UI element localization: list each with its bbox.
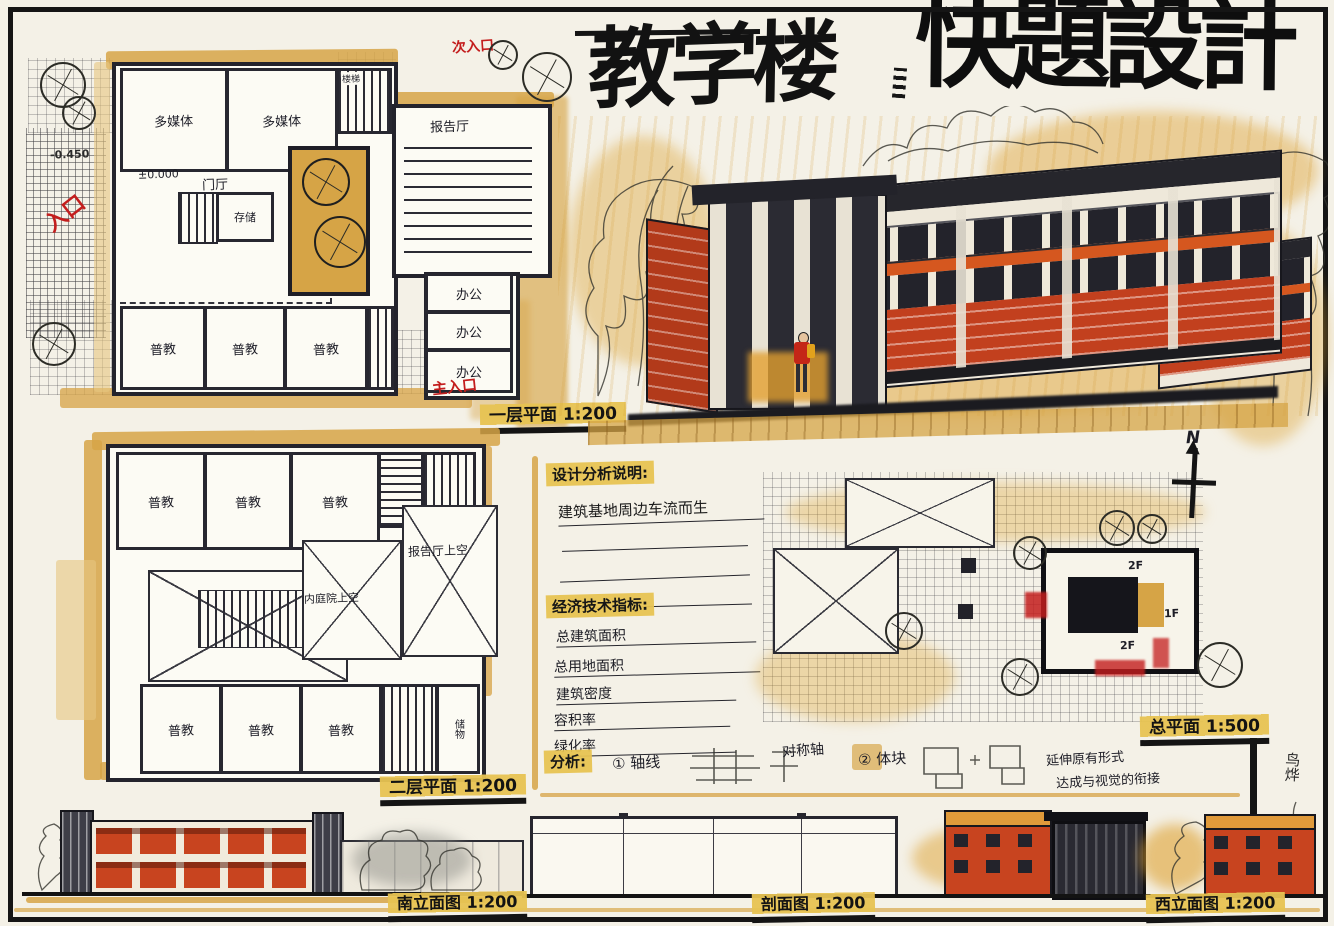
signature: 鸟烨 bbox=[1281, 752, 1303, 783]
plan1-stair-bottom bbox=[366, 306, 394, 390]
door-lintel bbox=[1044, 812, 1148, 821]
room-label: 普教 bbox=[232, 338, 259, 358]
plan1-hall-stair bbox=[178, 192, 218, 244]
plan1-room-office: 办公 bbox=[425, 273, 513, 313]
plan2-room-putong: 普教 bbox=[116, 452, 206, 550]
page-title-left: 教学楼 bbox=[587, 18, 834, 115]
section-tick bbox=[797, 813, 806, 819]
mass-sketch bbox=[918, 738, 1038, 794]
entrance-glow bbox=[748, 352, 828, 402]
plan1-room-multimedia: 多媒体 bbox=[120, 68, 228, 172]
room-label: 多媒体 bbox=[154, 110, 194, 130]
plan1-room-store: 存储 bbox=[216, 192, 274, 242]
plan2-void-lecture bbox=[402, 505, 498, 657]
tree-scribble bbox=[22, 822, 62, 892]
notes-header-design: 设计分析说明: bbox=[546, 462, 654, 485]
tree-icon bbox=[1013, 536, 1047, 570]
section-beam-line bbox=[533, 833, 895, 834]
window-row bbox=[954, 834, 1040, 847]
site-small-block bbox=[961, 558, 976, 573]
room-label: 办公 bbox=[456, 322, 482, 341]
tree-icon bbox=[1197, 642, 1243, 688]
room-label: 存储 bbox=[234, 209, 256, 225]
site-entry-red bbox=[1095, 660, 1145, 676]
notes-margin-stroke bbox=[532, 456, 538, 790]
room-label: 储物 bbox=[451, 719, 466, 739]
room-label: 普教 bbox=[168, 719, 195, 739]
tree-icon bbox=[522, 52, 572, 102]
window-row bbox=[954, 860, 1040, 873]
floor-label: 2F bbox=[1120, 639, 1136, 653]
site-court bbox=[773, 548, 899, 654]
tech-item-label: 总用地面积 bbox=[554, 655, 624, 677]
site-plan: 2F 1F 2F bbox=[755, 452, 1245, 738]
tree-icon bbox=[1137, 514, 1167, 544]
window-band bbox=[96, 828, 306, 854]
tree-scribble bbox=[352, 824, 502, 894]
plan1-room-office: 办公 bbox=[425, 311, 513, 351]
room-label: 普教 bbox=[148, 491, 175, 511]
tech-item-label: 建筑密度 bbox=[556, 683, 613, 704]
roof-court bbox=[1138, 583, 1164, 627]
plan1-room-putong: 普教 bbox=[120, 306, 206, 390]
site-court bbox=[845, 478, 995, 548]
band-top bbox=[1206, 816, 1314, 830]
plan1-lecture-wing: 报告厅 bbox=[392, 104, 552, 278]
hall-label: 门厅 bbox=[202, 174, 229, 194]
analysis-axis-note: 对称轴 bbox=[781, 739, 824, 762]
window-band bbox=[96, 862, 306, 888]
person-legs bbox=[796, 364, 800, 392]
site-small-block bbox=[958, 604, 973, 619]
void-stair bbox=[198, 590, 312, 648]
room-label: 办公 bbox=[456, 284, 482, 303]
person-figure bbox=[790, 332, 816, 410]
north-arrowhead bbox=[1186, 440, 1201, 455]
section-column bbox=[623, 819, 624, 895]
classroom-block bbox=[90, 820, 316, 896]
west-elevation-caption: 西立面图 1:200 bbox=[1146, 889, 1285, 923]
window-row bbox=[1214, 836, 1304, 849]
tree-scribble bbox=[1142, 812, 1212, 896]
tech-item: 建筑密度 bbox=[556, 680, 736, 706]
tree-icon bbox=[885, 612, 923, 650]
notes-header-tech: 经济技术指标: bbox=[546, 594, 654, 617]
plan2-room-putong-b: 普教 bbox=[220, 684, 302, 774]
bottom-ochre-line bbox=[14, 908, 1320, 912]
tech-item: 总建筑面积 bbox=[556, 621, 756, 647]
room-label: 报告厅 bbox=[430, 115, 470, 135]
ground-band bbox=[94, 62, 110, 392]
analysis-label: 分析: bbox=[544, 750, 592, 773]
roof-dark bbox=[1068, 577, 1138, 633]
plan2-room-putong-b: 普教 bbox=[140, 684, 222, 774]
building-main-facade bbox=[858, 149, 1282, 390]
analysis-mass-note: 达成与视觉的衔接 bbox=[1056, 767, 1161, 791]
room-label: 普教 bbox=[248, 719, 275, 739]
dark-door bbox=[1052, 821, 1146, 900]
room-label: 普教 bbox=[313, 338, 340, 358]
floor-label: 1F bbox=[1164, 607, 1180, 621]
band-top bbox=[946, 812, 1050, 827]
analysis-mass-item: ② 体块 bbox=[858, 747, 907, 770]
section-tick bbox=[619, 813, 628, 819]
analysis-axis-item: ① 轴线 bbox=[612, 751, 661, 774]
notes-header-tech-text: 经济技术指标: bbox=[546, 593, 655, 619]
analysis-label-text: 分析: bbox=[544, 749, 593, 773]
level-mark-zero: ±0.000 bbox=[138, 167, 179, 181]
site-entry-red bbox=[1153, 638, 1169, 668]
presentation-board: 教学楼 快題設計 多媒体 多媒体 楼梯 ±0.000 门厅 存储 普教 普教 普… bbox=[0, 0, 1334, 926]
perspective-rendering bbox=[558, 106, 1330, 434]
plan2-room-putong: 普教 bbox=[204, 452, 292, 550]
south-elevation-caption: 南立面图 1:200 bbox=[388, 888, 527, 922]
tech-item-label: 总建筑面积 bbox=[556, 625, 626, 647]
section-caption: 剖面图 1:200 bbox=[752, 889, 875, 923]
tech-item: 总用地面积 bbox=[554, 651, 760, 677]
plan1-courtyard bbox=[288, 146, 370, 296]
tree-icon bbox=[1099, 510, 1135, 546]
person-legs bbox=[803, 364, 807, 392]
site-entry-red bbox=[1025, 592, 1047, 618]
room-label: 普教 bbox=[150, 338, 177, 358]
room-label: 多媒体 bbox=[262, 110, 302, 130]
plan2-caption: 二层平面 1:200 bbox=[380, 771, 527, 807]
red-block bbox=[1204, 814, 1316, 898]
level-mark-neg: -0.450 bbox=[50, 147, 90, 161]
tech-item-label: 容积率 bbox=[554, 709, 597, 730]
room-label: 普教 bbox=[328, 719, 355, 739]
section-outline bbox=[530, 816, 898, 898]
tree-icon bbox=[1001, 658, 1039, 696]
person-backpack bbox=[807, 344, 815, 358]
plan2-room-putong: 普教 bbox=[290, 452, 380, 550]
plan2-room-storage: 储物 bbox=[436, 684, 480, 774]
title-seal-mark bbox=[892, 68, 907, 99]
window-row bbox=[1214, 862, 1304, 875]
site-building-footprint: 2F 1F 2F bbox=[1041, 548, 1199, 674]
tree-icon bbox=[302, 158, 350, 206]
notes-header-design-text: 设计分析说明: bbox=[546, 461, 655, 487]
stair-tower bbox=[60, 810, 94, 896]
tree-icon bbox=[62, 96, 96, 130]
room-label: 普教 bbox=[235, 491, 262, 511]
plan1-room-putong: 普教 bbox=[204, 306, 286, 390]
lecture-seat-rows bbox=[404, 140, 532, 264]
tree-icon bbox=[32, 322, 76, 366]
section-column bbox=[801, 819, 802, 895]
divider-stroke bbox=[540, 793, 1240, 797]
tree-scribble bbox=[858, 106, 1118, 176]
void-label: 内庭院上空 bbox=[304, 589, 360, 607]
stair-label: 楼梯 bbox=[341, 72, 361, 86]
blank-line bbox=[560, 574, 750, 582]
red-block bbox=[944, 810, 1052, 898]
tree-icon bbox=[488, 40, 518, 70]
plan2-room-putong-b: 普教 bbox=[300, 684, 382, 774]
void-label: 报告厅上空 bbox=[408, 541, 469, 560]
analysis-mass-note: 延伸原有形式 bbox=[1046, 746, 1125, 769]
blank-line bbox=[562, 545, 748, 552]
notes-design-line: 建筑基地周边车流而生 bbox=[558, 494, 765, 526]
room-label: 普教 bbox=[322, 491, 349, 511]
ground-band bbox=[56, 560, 96, 720]
plan1-room-putong: 普教 bbox=[284, 306, 368, 390]
section-column bbox=[713, 819, 714, 895]
page-title-right: 快題設計 bbox=[915, 0, 1292, 98]
tree-icon bbox=[314, 216, 366, 268]
plan2-stair-bottom bbox=[380, 684, 438, 774]
floor-label: 2F bbox=[1128, 559, 1144, 573]
tech-item: 容积率 bbox=[554, 706, 730, 732]
